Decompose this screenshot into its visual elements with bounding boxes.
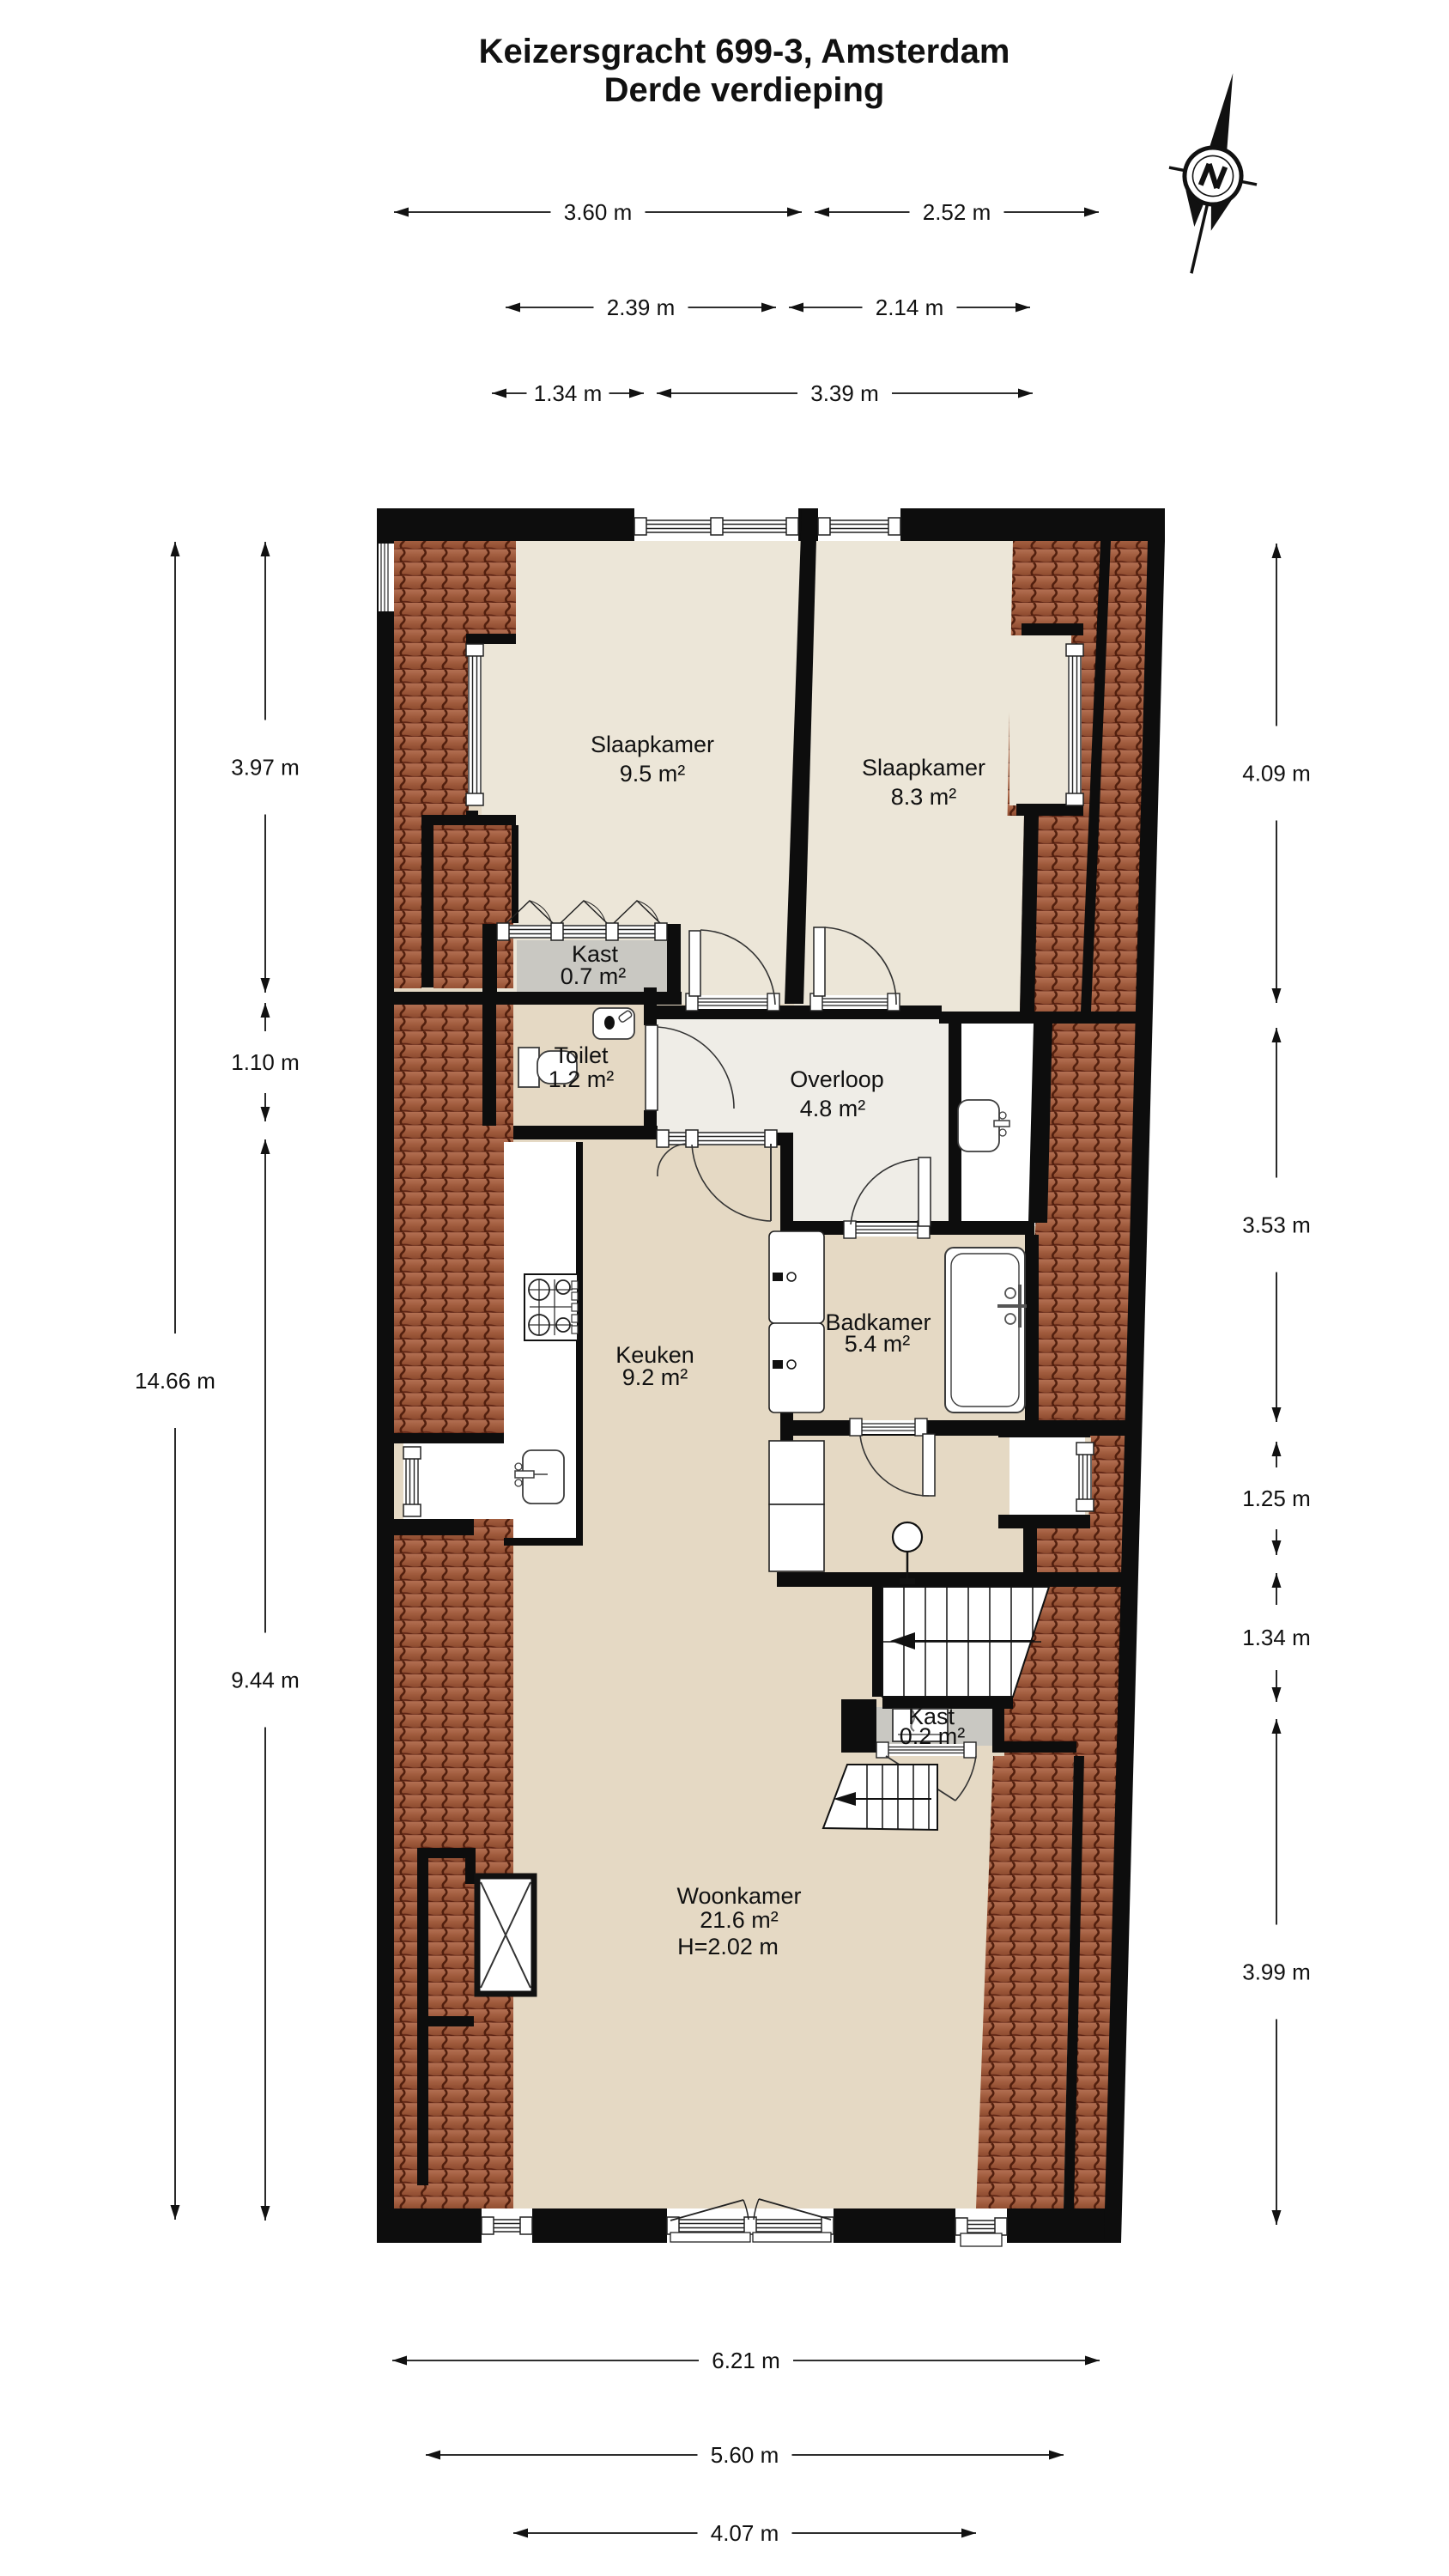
svg-text:3.53 m: 3.53 m (1242, 1212, 1311, 1238)
svg-text:Overloop: Overloop (790, 1066, 884, 1092)
svg-text:4.09 m: 4.09 m (1242, 761, 1311, 787)
svg-text:1.10 m: 1.10 m (231, 1049, 300, 1075)
svg-text:3.99 m: 3.99 m (1242, 1959, 1311, 1985)
svg-text:Slaapkamer: Slaapkamer (862, 755, 985, 781)
svg-text:1.34 m: 1.34 m (534, 380, 603, 406)
svg-text:Woonkamer: Woonkamer (676, 1883, 801, 1909)
svg-text:4.07 m: 4.07 m (711, 2520, 779, 2546)
svg-text:2.14 m: 2.14 m (876, 295, 944, 320)
svg-text:0.7 m²: 0.7 m² (561, 963, 627, 989)
svg-text:H=2.02 m: H=2.02 m (677, 1934, 779, 1959)
svg-text:14.66 m: 14.66 m (135, 1368, 215, 1394)
svg-text:3.39 m: 3.39 m (810, 380, 879, 406)
svg-text:9.5 m²: 9.5 m² (620, 761, 686, 787)
svg-text:Derde verdieping: Derde verdieping (604, 71, 885, 109)
svg-text:2.39 m: 2.39 m (607, 295, 676, 320)
svg-text:5.4 m²: 5.4 m² (845, 1331, 911, 1357)
svg-text:0.2 m²: 0.2 m² (900, 1723, 966, 1749)
svg-text:Slaapkamer: Slaapkamer (591, 732, 714, 757)
svg-text:6.21 m: 6.21 m (712, 2348, 780, 2373)
svg-text:2.52 m: 2.52 m (923, 199, 991, 225)
svg-text:1.2 m²: 1.2 m² (549, 1066, 615, 1092)
svg-text:Toilet: Toilet (554, 1042, 609, 1068)
svg-text:1.25 m: 1.25 m (1242, 1485, 1311, 1511)
svg-text:8.3 m²: 8.3 m² (891, 784, 957, 810)
svg-text:1.34 m: 1.34 m (1242, 1625, 1311, 1650)
svg-text:3.97 m: 3.97 m (231, 755, 300, 781)
svg-text:3.60 m: 3.60 m (564, 199, 633, 225)
svg-text:9.44 m: 9.44 m (231, 1668, 300, 1693)
svg-text:21.6 m²: 21.6 m² (700, 1907, 779, 1933)
svg-text:5.60 m: 5.60 m (711, 2442, 779, 2468)
svg-text:Keizersgracht 699-3, Amsterdam: Keizersgracht 699-3, Amsterdam (479, 33, 1010, 70)
svg-text:9.2 m²: 9.2 m² (622, 1364, 688, 1390)
svg-text:4.8 m²: 4.8 m² (800, 1096, 866, 1121)
